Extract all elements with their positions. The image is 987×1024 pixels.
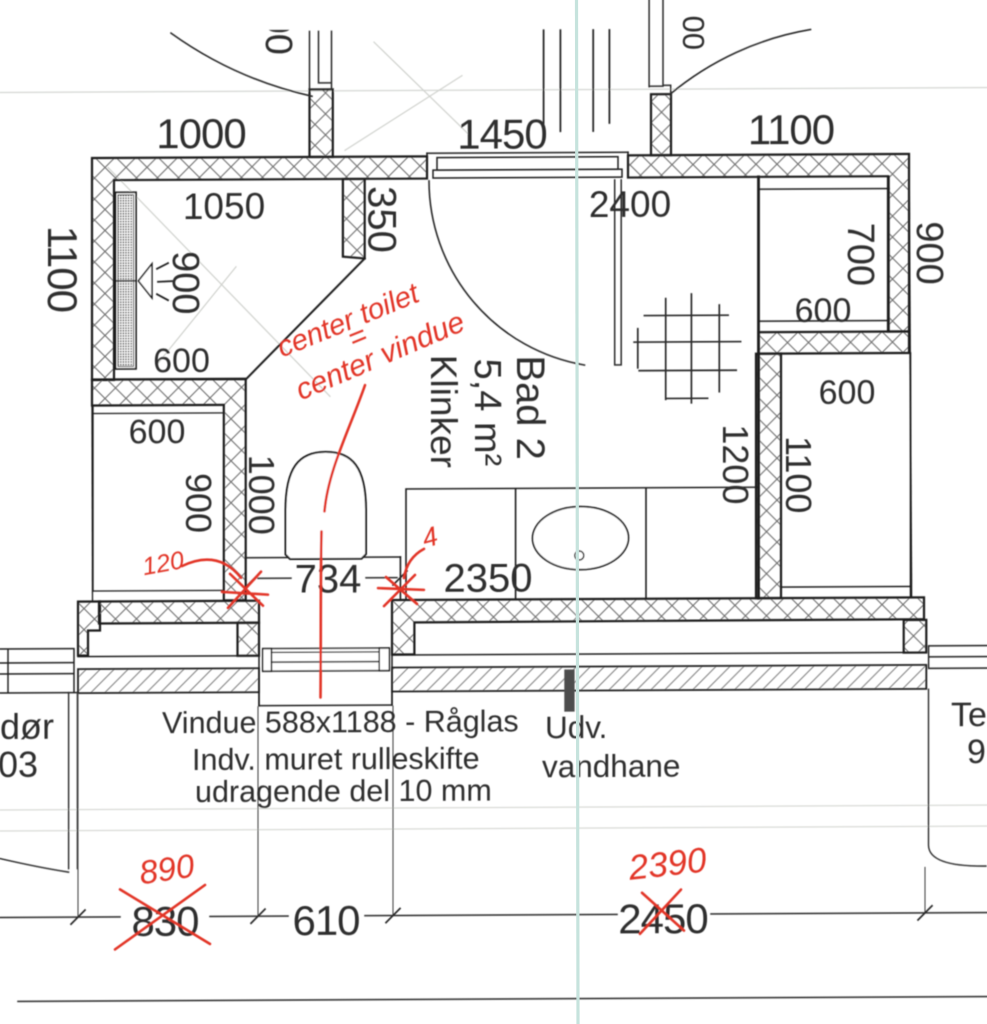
svg-text:600: 600 [819, 374, 876, 412]
svg-text:Vindue 588x1188 - Råglas: Vindue 588x1188 - Råglas [162, 704, 519, 740]
svg-text:1100: 1100 [748, 106, 834, 153]
svg-text:Indv. muret rulleskifte: Indv. muret rulleskifte [192, 742, 480, 777]
svg-text:5,4 m²: 5,4 m² [466, 358, 508, 466]
svg-text:Bad 2: Bad 2 [508, 355, 552, 460]
svg-text:1000: 1000 [156, 110, 245, 157]
svg-text:9: 9 [967, 733, 986, 771]
svg-text:03: 03 [0, 744, 38, 785]
svg-text:vandhane: vandhane [542, 748, 680, 785]
svg-text:1200: 1200 [715, 424, 756, 504]
svg-text:Te: Te [951, 696, 987, 734]
svg-text:600: 600 [129, 413, 186, 451]
svg-text:830: 830 [131, 898, 198, 945]
svg-text:600: 600 [795, 292, 852, 330]
svg-text:Klinker: Klinker [423, 355, 464, 468]
svg-text:600: 600 [153, 342, 210, 380]
svg-text:2350: 2350 [444, 556, 533, 600]
svg-text:1050: 1050 [183, 186, 265, 227]
svg-text:900: 900 [164, 251, 206, 315]
svg-text:udragende del 10 mm: udragende del 10 mm [195, 774, 492, 809]
svg-text:734: 734 [295, 557, 362, 601]
svg-text:00: 00 [676, 15, 711, 50]
svg-text:2450: 2450 [618, 895, 707, 942]
svg-text:1100: 1100 [778, 436, 819, 514]
svg-text:350: 350 [360, 186, 404, 253]
svg-text:900: 900 [178, 473, 219, 533]
svg-text:610: 610 [292, 897, 359, 944]
svg-text:1000: 1000 [241, 455, 282, 535]
svg-text:2400: 2400 [589, 184, 671, 225]
svg-text:dør: dør [0, 706, 54, 747]
svg-text:1100: 1100 [39, 226, 86, 313]
svg-text:1450: 1450 [457, 110, 546, 157]
svg-text:900: 900 [908, 221, 950, 285]
svg-text:700: 700 [839, 223, 881, 287]
